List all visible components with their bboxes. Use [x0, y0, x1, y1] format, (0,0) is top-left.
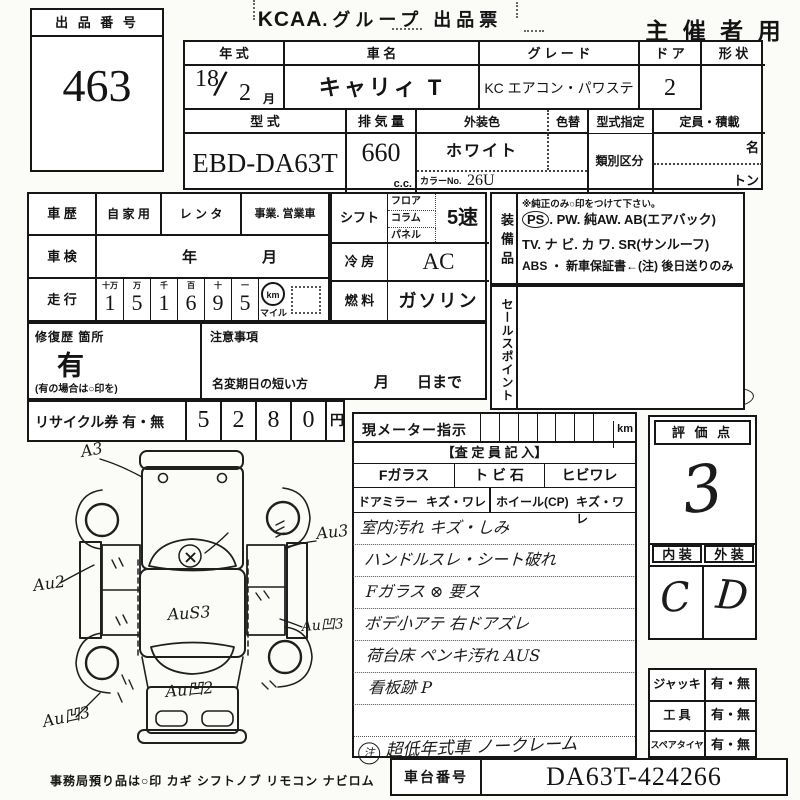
- ac-value: AC: [388, 244, 489, 280]
- group-logo: KCAA: [258, 8, 323, 31]
- mileage-digit-cell: 十9: [205, 279, 232, 320]
- note-line: 室内汚れ キズ・しみ: [353, 513, 636, 545]
- grade-value: KC エアコン・パワステ: [480, 66, 640, 110]
- mileage-digit-cell: 千1: [151, 279, 178, 320]
- color-change-cell: [547, 134, 587, 170]
- fender-front-left: [76, 490, 102, 549]
- fuel-label: 燃 料: [332, 282, 388, 320]
- left-outer-rail: [80, 542, 101, 638]
- note-line: 看板跡 P: [353, 673, 636, 705]
- rating-box: 評 価 点 3 内 装 外 装 C D: [648, 415, 757, 640]
- history-private: 自 家 用: [97, 194, 162, 234]
- shift-table: シフト フロア コラム パネル 5速 冷 房 AC 燃 料 ガソリン: [330, 192, 487, 322]
- spare-tire-label: スペアタイヤ: [650, 732, 706, 760]
- sales-point-label: セールスポイント: [492, 287, 518, 408]
- accessories-box: ジャッキ 有・無 工 具 有・無 スペアタイヤ 有・無: [648, 668, 757, 758]
- wheel-rear-right: [269, 641, 301, 673]
- name-change-month: 月: [374, 371, 389, 392]
- tools-value: 有・無: [706, 702, 755, 730]
- in-ex-header: 内 装 外 装: [650, 545, 755, 567]
- displacement-unit: c.c.: [394, 178, 412, 190]
- mileage-digit-cell: 一5: [232, 279, 259, 320]
- mileage-digits: 十万1 万5 千1 百6 十9 一5: [97, 279, 259, 320]
- equipment-line1: PS. PW. 純AW. AB(エアバック): [522, 209, 744, 228]
- meter-digit-cell: [500, 414, 519, 441]
- meter-digit-cell: [519, 414, 538, 441]
- tools-row: 工 具 有・無: [650, 702, 755, 732]
- scan-artifact: [253, 0, 256, 20]
- wheel-front-left: [86, 504, 118, 536]
- color-no-cell: カラーNo. 26U: [417, 170, 587, 192]
- tools-label: 工 具: [650, 702, 706, 730]
- jack-row: ジャッキ 有・無: [650, 670, 755, 702]
- stone-chip-label: ト ビ 石: [454, 463, 545, 488]
- scratch-mark: [256, 591, 269, 600]
- crack-label: ヒビワレ: [544, 463, 635, 488]
- repair-history-label: 修復歴 箇所: [35, 328, 104, 345]
- ac-label: 冷 房: [332, 244, 388, 280]
- meter-digit-cell: [575, 414, 594, 441]
- note-line: Fガラス ⊗ 要ス: [353, 577, 636, 609]
- displacement-header: 排 気 量: [347, 110, 417, 134]
- assessor-notes: 室内汚れ キズ・しみ ハンドルスレ・シート破れ Fガラス ⊗ 要ス ボデ小アテ …: [354, 513, 635, 737]
- damage-code: Au3: [313, 521, 349, 543]
- interior-value: C: [658, 574, 693, 623]
- equipment-line2: TV. ナ ビ. カ ワ. SR(サンルーフ): [522, 234, 744, 253]
- name-change-label: 名変期日の短い方: [212, 375, 308, 392]
- rear-bumper: [138, 730, 246, 743]
- meter-label: 現メーター指示: [362, 420, 467, 440]
- chassis-box: 車台番号 DA63T-424266: [390, 758, 788, 796]
- mileage-digit: 1: [97, 290, 123, 316]
- spare-tire-row: スペアタイヤ 有・無: [650, 732, 755, 760]
- note-line: 荷台床 ペンキ汚れ AUS: [353, 641, 636, 673]
- divider: [702, 567, 704, 638]
- wheel-label: ホイール(CP): [496, 493, 569, 510]
- inspection-month-unit: 月: [262, 246, 277, 267]
- color-change-header: 色替: [547, 110, 587, 134]
- assessor-header: 【査 定 員 記 入】: [354, 443, 635, 464]
- bottom-note-circled-char: 注: [358, 742, 381, 765]
- shift-value: 5速: [436, 194, 489, 242]
- note-line: ハンドルスレ・シート破れ: [353, 545, 636, 577]
- score-value: 3: [645, 446, 759, 534]
- front-glass-label: Fガラス: [354, 463, 455, 488]
- repair-caution-row: 修復歴 箇所 有 (有の場合は○印を) 注意事項 名変期日の短い方 月 日まで: [27, 322, 487, 400]
- fender-front-right: [283, 488, 310, 547]
- damage-code: Au2: [30, 572, 66, 596]
- scratch-mark: [262, 681, 276, 689]
- windshield-x-mark: ×: [183, 547, 198, 568]
- category-header: 類別区分: [589, 152, 650, 169]
- equipment-line1-rest: . PW. 純AW. AB(エアバック): [549, 212, 716, 227]
- divider: [587, 134, 589, 192]
- grade-header: グ レ ー ド: [480, 42, 640, 66]
- shape-header: 形 状: [702, 42, 765, 66]
- model-header: 型 式: [185, 110, 347, 134]
- year-cell: 18 / 2 月: [185, 66, 285, 110]
- marker-light-right: [218, 474, 227, 483]
- meter-digit-cell: [481, 414, 500, 441]
- ext-color-header: 外装色: [417, 110, 547, 134]
- damage-code: AuS3: [165, 602, 211, 624]
- shift-options: フロア コラム パネル: [388, 194, 436, 242]
- inspection-year-unit: 年: [182, 246, 197, 267]
- mileage-digit-cell: 万5: [124, 279, 151, 320]
- sales-point-box: セールスポイント: [490, 285, 745, 410]
- shift-label: シフト: [332, 194, 388, 242]
- mirror-row: ドアミラー キズ・ワレ ホイール(CP) キズ・ワレ: [354, 488, 635, 513]
- inspection-label: 車 検: [29, 236, 97, 277]
- equipment-box: 装備品 ※純正のみ○印をつけて下さい。 PS. PW. 純AW. AB(エアバッ…: [490, 192, 745, 285]
- car-name-value: キャリィ T: [285, 66, 480, 110]
- scan-artifact: [516, 2, 519, 18]
- name-change-day: 日まで: [417, 371, 462, 392]
- damage-code: Au凹3: [299, 616, 344, 635]
- jack-label: ジャッキ: [650, 670, 706, 700]
- scratch-mark: [118, 675, 133, 702]
- shift-option-floor: フロア: [388, 194, 436, 211]
- damage-code: A3: [77, 438, 104, 461]
- auction-sheet: 出 品 番 号 463 KCAA.グループ 出品票 主 催 者 用 年 式 車 …: [0, 0, 800, 800]
- door-value: 2: [640, 66, 702, 110]
- mileage-digit: 6: [178, 290, 204, 316]
- lot-number-box: 出 品 番 号 463: [30, 8, 164, 172]
- right-side-panel: [247, 545, 285, 635]
- wheel-front-right: [267, 502, 299, 534]
- leader-line: [280, 619, 302, 627]
- caution-label: 注意事項: [210, 328, 258, 345]
- lot-number-value: 463: [32, 59, 162, 112]
- score-label: 評 価 点: [654, 420, 751, 445]
- year-month-value: 2: [239, 80, 251, 107]
- recycle-label: リサイクル券 有・無: [35, 412, 164, 432]
- scratch-mark: [112, 558, 123, 568]
- repair-history-note: (有の場合は○印を): [35, 380, 118, 395]
- color-no-value: 26U: [467, 172, 495, 190]
- capacity-load-unit: トン: [654, 170, 759, 189]
- type-designation-header: 型式指定: [587, 110, 652, 134]
- spec-table: 年 式 車 名 グ レ ー ド ド ア 形 状 18 / 2 月 キャリィ T …: [183, 40, 763, 190]
- vehicle-diagram: × A3 Au3 Au2 AuS3 Au凹3 Au凹2 Au凹3: [30, 435, 350, 765]
- bottom-note-text: 超低年式車 ノークレーム: [385, 734, 577, 761]
- interior-label: 内 装: [652, 545, 702, 563]
- marker-light-left: [159, 474, 168, 483]
- scan-artifact: [392, 26, 422, 30]
- taillight-right: [202, 711, 233, 726]
- damage-code: Au凹3: [39, 702, 92, 731]
- capacity-persons-unit: 名: [654, 137, 759, 156]
- divider: [489, 488, 491, 513]
- mile-label: マイル: [260, 306, 287, 319]
- taillight-left: [156, 711, 187, 726]
- history-rental: レ ン タ: [162, 194, 242, 234]
- caution-cell: 注意事項 名変期日の短い方 月 日まで: [202, 324, 485, 398]
- capacity-divider: [654, 163, 762, 165]
- leader-line: [100, 459, 142, 477]
- meter-digit-cell: [538, 414, 557, 441]
- ext-color-value: ホワイト: [417, 134, 547, 170]
- chassis-value: DA63T-424266: [482, 760, 786, 794]
- rear-connector-right: [237, 657, 243, 688]
- equipment-ps-circled: PS: [522, 211, 549, 228]
- repair-history-cell: 修復歴 箇所 有 (有の場合は○印を): [29, 324, 202, 398]
- history-table: 車 歴 自 家 用 レ ン タ 事業. 営業車 車 検 年 月 走 行 十万1 …: [27, 192, 330, 322]
- damage-code: Au凹2: [163, 678, 215, 701]
- mileage-digit-cell: 百6: [178, 279, 205, 320]
- model-value: EBD-DA63T: [185, 134, 347, 192]
- displacement-cell: 660 c.c.: [347, 134, 417, 192]
- assessment-panel: 現メーター指示 km 【査 定 員 記 入】 Fガラス ト ビ 石 ヒビワレ ド…: [352, 412, 637, 758]
- lot-number-label: 出 品 番 号: [32, 10, 162, 37]
- door-header: ド ア: [640, 42, 702, 66]
- jack-value: 有・無: [706, 670, 755, 700]
- km-circle-icon: km: [261, 282, 285, 306]
- shift-option-column: コラム: [388, 211, 436, 228]
- history-commercial: 事業. 営業車: [242, 194, 328, 234]
- chassis-label: 車台番号: [392, 760, 482, 794]
- mileage-digit: 5: [124, 290, 150, 316]
- meter-digit-boxes: [480, 414, 612, 441]
- mileage-label: 走 行: [29, 279, 97, 320]
- meter-digit-cell: [556, 414, 575, 441]
- spare-tire-value: 有・無: [706, 732, 755, 760]
- inspection-cell: 年 月: [97, 236, 328, 277]
- equipment-line3: ABS ・ 新車保証書←(注) 後日送りのみ: [522, 257, 744, 274]
- fuel-value: ガソリン: [388, 282, 489, 320]
- rear-connector-left: [142, 657, 148, 688]
- equipment-label: 装備品: [492, 194, 518, 283]
- glass-row: Fガラス ト ビ 石 ヒビワレ: [354, 463, 635, 488]
- exterior-label: 外 装: [704, 545, 754, 563]
- sheet-title: KCAA.グループ 出品票: [215, 6, 545, 32]
- mileage-digit: 5: [232, 290, 258, 316]
- name-header: 車 名: [285, 42, 480, 66]
- scan-artifact: [524, 28, 544, 32]
- rear-window: [151, 643, 234, 675]
- leader-line: [60, 565, 94, 583]
- fender-rear-left: [76, 633, 110, 693]
- equipment-note: ※純正のみ○印をつけて下さい。: [522, 196, 744, 210]
- capacity-header: 定員・積載: [652, 110, 765, 134]
- scratch-mark: [116, 615, 127, 625]
- wheel-rear-left: [86, 647, 118, 679]
- history-label: 車 歴: [29, 194, 97, 234]
- repair-history-value: 有: [57, 344, 84, 383]
- month-unit: 月: [263, 90, 275, 107]
- displacement-value: 660: [347, 138, 415, 168]
- year-header: 年 式: [185, 42, 285, 66]
- exterior-value: D: [714, 572, 750, 621]
- door-mirror-label: ドアミラー: [358, 493, 418, 510]
- mileage-digit: 1: [151, 290, 177, 316]
- meter-digit-cell: [594, 414, 612, 441]
- office-note: 事務局預り品は○印 カギ シフトノブ リモコン ナビロム: [50, 772, 375, 789]
- mile-checkbox: [291, 286, 321, 314]
- color-no-label: カラーNo.: [420, 174, 462, 187]
- mileage-digit-cell: 十万1: [97, 279, 124, 320]
- door-mirror-options: キズ・ワレ: [426, 493, 486, 510]
- mileage-digit: 9: [205, 290, 231, 316]
- damage-codes: A3 Au3 Au2 AuS3 Au凹3 Au凹2 Au凹3: [30, 438, 349, 731]
- note-line: ボデ小アテ 右ドアズレ: [353, 609, 636, 641]
- meter-row: 現メーター指示 km: [354, 414, 635, 443]
